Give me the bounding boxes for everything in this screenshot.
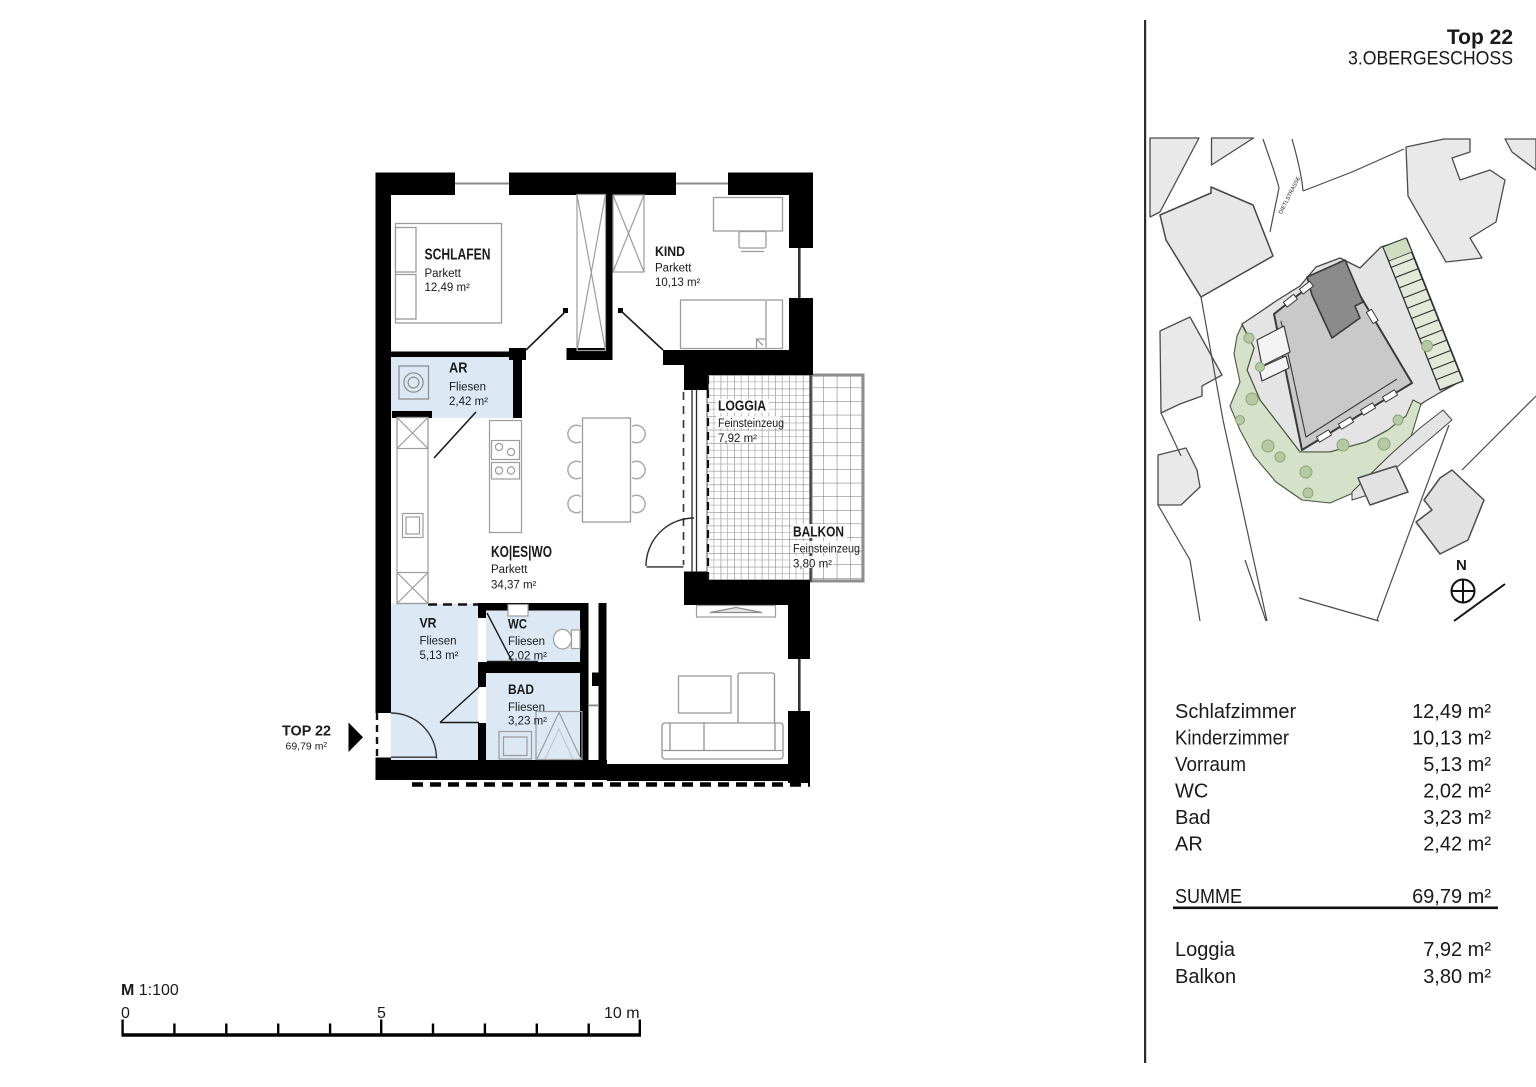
svg-text:7,92 m²: 7,92 m² — [718, 433, 757, 445]
svg-text:Top 22: Top 22 — [1447, 26, 1513, 49]
svg-text:5,13 m²: 5,13 m² — [420, 650, 459, 662]
svg-text:3.OBERGESCHOSS: 3.OBERGESCHOSS — [1348, 49, 1513, 70]
svg-text:5: 5 — [377, 1005, 386, 1022]
svg-text:Kinderzimmer: Kinderzimmer — [1175, 728, 1289, 750]
svg-text:Loggia: Loggia — [1175, 939, 1236, 961]
svg-text:M 1:100: M 1:100 — [121, 982, 179, 999]
svg-text:2,02 m²: 2,02 m² — [508, 651, 547, 663]
svg-text:12,49 m²: 12,49 m² — [425, 282, 471, 294]
svg-text:12,49 m²: 12,49 m² — [1412, 701, 1491, 723]
svg-text:3,23 m²: 3,23 m² — [508, 716, 547, 728]
svg-text:BAD: BAD — [508, 681, 534, 697]
svg-text:69,79 m²: 69,79 m² — [286, 741, 328, 753]
svg-text:BALKON: BALKON — [793, 524, 844, 541]
svg-text:3,23 m²: 3,23 m² — [1423, 807, 1491, 829]
svg-text:SUMME: SUMME — [1175, 886, 1242, 908]
svg-text:Parkett: Parkett — [425, 268, 462, 280]
svg-text:0: 0 — [121, 1005, 130, 1022]
svg-text:VR: VR — [420, 615, 437, 631]
svg-text:Vorraum: Vorraum — [1175, 754, 1246, 776]
svg-text:Fliesen: Fliesen — [508, 636, 545, 648]
svg-text:3,80 m²: 3,80 m² — [1423, 966, 1491, 988]
svg-text:69,79 m²: 69,79 m² — [1412, 886, 1491, 908]
svg-text:AR: AR — [449, 361, 468, 377]
svg-text:Schlafzimmer: Schlafzimmer — [1175, 701, 1296, 723]
svg-text:34,37 m²: 34,37 m² — [491, 580, 537, 592]
svg-text:TOP 22: TOP 22 — [282, 724, 331, 740]
svg-text:10,13 m²: 10,13 m² — [1412, 728, 1491, 750]
svg-text:SCHLAFEN: SCHLAFEN — [425, 247, 491, 264]
svg-text:LOGGIA: LOGGIA — [718, 399, 766, 415]
svg-text:WC: WC — [1175, 781, 1208, 803]
svg-text:N: N — [1456, 557, 1467, 574]
svg-text:Fliesen: Fliesen — [508, 702, 545, 714]
svg-text:KO|ES|WO: KO|ES|WO — [491, 544, 552, 561]
svg-text:5,13 m²: 5,13 m² — [1423, 754, 1491, 776]
svg-text:AR: AR — [1175, 834, 1203, 856]
svg-text:2,42 m²: 2,42 m² — [1423, 834, 1491, 856]
svg-text:10,13 m²: 10,13 m² — [655, 277, 701, 289]
svg-text:Bad: Bad — [1175, 807, 1211, 829]
svg-text:3,80 m²: 3,80 m² — [793, 559, 832, 571]
svg-text:Parkett: Parkett — [491, 564, 528, 576]
svg-text:2,02 m²: 2,02 m² — [1423, 781, 1491, 803]
svg-text:Feinsteinzeug: Feinsteinzeug — [718, 418, 784, 430]
svg-text:KIND: KIND — [655, 243, 685, 259]
svg-text:10 m: 10 m — [604, 1005, 640, 1022]
svg-text:2,42 m²: 2,42 m² — [449, 396, 488, 408]
svg-text:WC: WC — [508, 616, 527, 632]
svg-text:Balkon: Balkon — [1175, 966, 1236, 988]
svg-text:Parkett: Parkett — [655, 263, 692, 275]
svg-text:Fliesen: Fliesen — [449, 382, 486, 394]
svg-text:Feinsteinzeug: Feinsteinzeug — [793, 544, 860, 556]
svg-text:7,92 m²: 7,92 m² — [1423, 939, 1491, 961]
svg-text:Fliesen: Fliesen — [420, 636, 457, 648]
